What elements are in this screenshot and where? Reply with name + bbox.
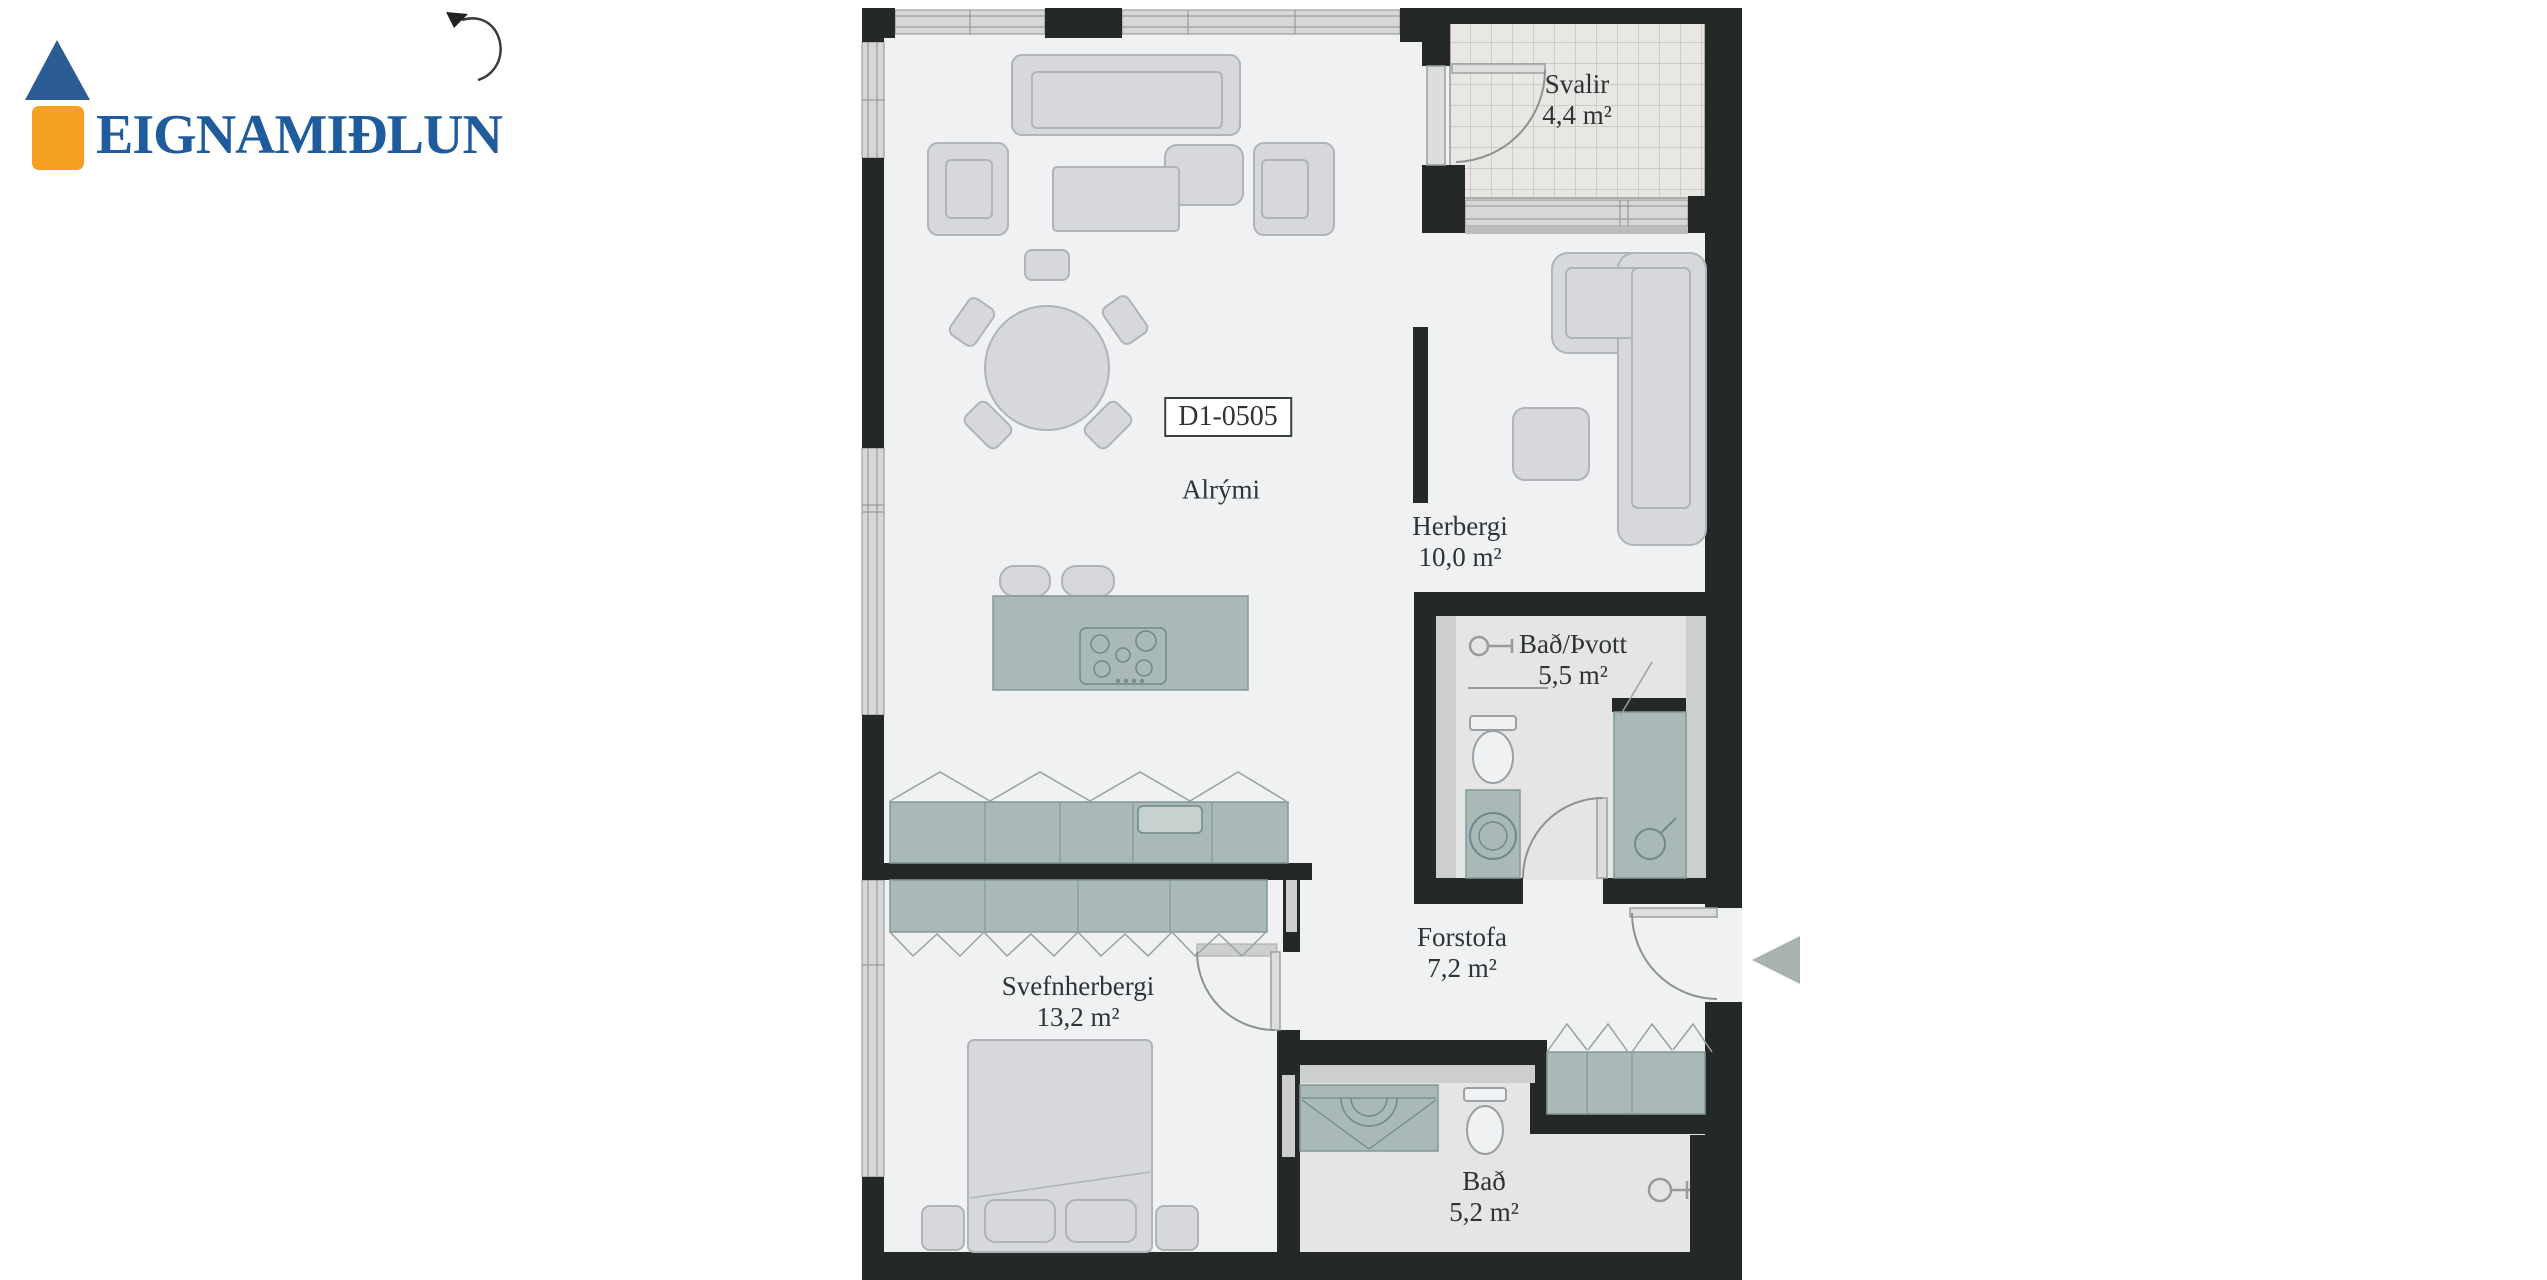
washing-machine bbox=[1466, 790, 1520, 878]
window-left-2 bbox=[862, 448, 884, 715]
unit-id-label: D1-0505 bbox=[1164, 397, 1292, 437]
north-arrow-icon bbox=[438, 4, 518, 90]
brand-name: EIGNAMIÐLUN bbox=[96, 103, 502, 167]
bedroom-door-threshold bbox=[1197, 944, 1277, 956]
pillow bbox=[985, 1200, 1055, 1242]
room-area: 5,2 m² bbox=[1449, 1197, 1519, 1228]
room-label-forstofa: Forstofa 7,2 m² bbox=[1417, 922, 1507, 984]
room-area: 4,4 m² bbox=[1542, 100, 1612, 131]
pocket-door bbox=[1282, 1075, 1295, 1157]
window-left-1 bbox=[862, 42, 884, 158]
room-name: Bað/Þvott bbox=[1519, 629, 1627, 659]
coffee-table bbox=[1053, 167, 1179, 231]
balcony-door-glass bbox=[1427, 66, 1445, 165]
pillow bbox=[1066, 1200, 1136, 1242]
toilet bbox=[1470, 716, 1516, 783]
room-name: Svefnherbergi bbox=[1002, 971, 1154, 1001]
room-area: 7,2 m² bbox=[1417, 953, 1507, 984]
nightstand bbox=[1156, 1206, 1198, 1250]
vanity-sink bbox=[1300, 1085, 1438, 1151]
ottoman bbox=[1513, 408, 1589, 480]
room-name: Forstofa bbox=[1417, 922, 1507, 952]
dining-table bbox=[985, 306, 1109, 430]
room-label-alrymi: Alrými bbox=[1182, 475, 1260, 506]
balcony-door-leaf bbox=[1452, 64, 1545, 73]
room-label-bad-thvott: Bað/Þvott 5,5 m² bbox=[1519, 629, 1627, 691]
entrance-arrow-icon bbox=[1752, 936, 1800, 984]
room-name: Svalir bbox=[1545, 69, 1610, 99]
logo-roof-triangle bbox=[25, 40, 90, 100]
room-label-svalir: Svalir 4,4 m² bbox=[1542, 69, 1612, 131]
bedroom-door-leaf bbox=[1271, 952, 1280, 1030]
entrance-door-leaf bbox=[1630, 908, 1717, 917]
kitchen-island bbox=[993, 596, 1248, 690]
bar-stool bbox=[1000, 566, 1050, 596]
room-area: 13,2 m² bbox=[1002, 1002, 1154, 1033]
room-area: 5,5 m² bbox=[1519, 660, 1627, 691]
room-label-svefnherbergi: Svefnherbergi 13,2 m² bbox=[1002, 971, 1154, 1033]
room-name: Bað bbox=[1462, 1166, 1506, 1196]
room-label-herbergi: Herbergi 10,0 m² bbox=[1412, 511, 1507, 573]
bath-laundry-door-leaf bbox=[1597, 798, 1607, 878]
room-label-bad: Bað 5,2 m² bbox=[1449, 1166, 1519, 1228]
logo-house-square bbox=[32, 106, 84, 170]
room-name: Herbergi bbox=[1412, 511, 1507, 541]
kitchen-counter bbox=[890, 802, 1288, 863]
kitchen-sink bbox=[1138, 806, 1202, 833]
floorplan-drawing bbox=[850, 0, 1850, 1280]
window-top-2 bbox=[1122, 10, 1400, 34]
window-top-1 bbox=[895, 10, 1045, 34]
bar-stool bbox=[1062, 566, 1114, 596]
room-name: Alrými bbox=[1182, 475, 1260, 505]
partition-wall bbox=[1413, 327, 1428, 503]
balcony-railing bbox=[1465, 200, 1688, 234]
window-left-3 bbox=[862, 880, 884, 1177]
floorplan-page: EIGNAMIÐLUN bbox=[0, 0, 2547, 1280]
toilet bbox=[1464, 1088, 1506, 1154]
nightstand bbox=[922, 1206, 964, 1250]
room-area: 10,0 m² bbox=[1412, 542, 1507, 573]
